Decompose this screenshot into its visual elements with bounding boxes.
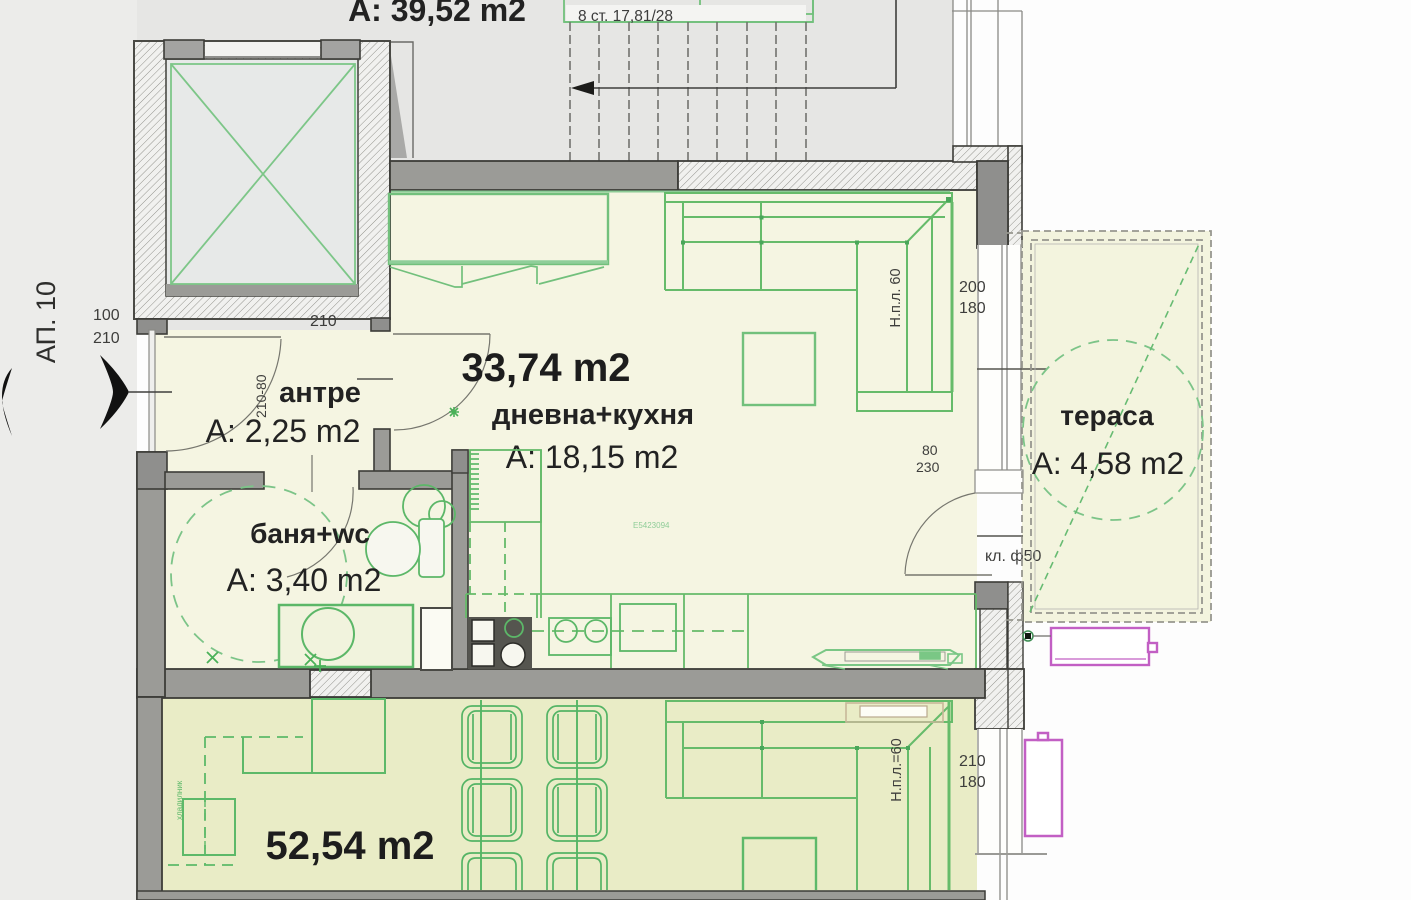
svg-text:52,54 m2: 52,54 m2 — [265, 824, 434, 868]
svg-text:210-80: 210-80 — [253, 374, 269, 418]
svg-text:210: 210 — [959, 753, 986, 770]
svg-text:210: 210 — [93, 330, 120, 347]
svg-text:33,74 m2: 33,74 m2 — [461, 346, 630, 390]
svg-text:80: 80 — [922, 442, 938, 458]
svg-text:E5423094: E5423094 — [633, 521, 670, 530]
svg-text:баня+wc: баня+wc — [250, 518, 370, 549]
svg-text:Н.п.л. 60: Н.п.л. 60 — [888, 268, 904, 327]
svg-text:A: 2,25 m2: A: 2,25 m2 — [206, 413, 361, 449]
svg-text:230: 230 — [916, 459, 940, 475]
svg-text:дневна+кухня: дневна+кухня — [492, 399, 694, 431]
svg-text:тераса: тераса — [1060, 400, 1154, 431]
svg-text:A: 18,15 m2: A: 18,15 m2 — [506, 439, 679, 475]
svg-text:АП. 10: АП. 10 — [31, 281, 61, 363]
svg-text:200: 200 — [959, 279, 986, 296]
svg-text:A: 4,58 m2: A: 4,58 m2 — [1032, 445, 1184, 481]
svg-text:210: 210 — [310, 313, 337, 330]
svg-text:A: 3,40 m2: A: 3,40 m2 — [227, 562, 382, 598]
svg-text:100: 100 — [93, 307, 120, 324]
svg-text:180: 180 — [959, 300, 986, 317]
svg-text:180: 180 — [959, 774, 986, 791]
svg-text:антре: антре — [279, 377, 361, 409]
svg-text:A: 39,52 m2: A: 39,52 m2 — [348, 0, 526, 28]
svg-text:Н.п.л.=60: Н.п.л.=60 — [889, 738, 905, 801]
svg-text:хладилник: хладилник — [175, 780, 184, 820]
svg-text:кл. ф50: кл. ф50 — [985, 548, 1041, 565]
